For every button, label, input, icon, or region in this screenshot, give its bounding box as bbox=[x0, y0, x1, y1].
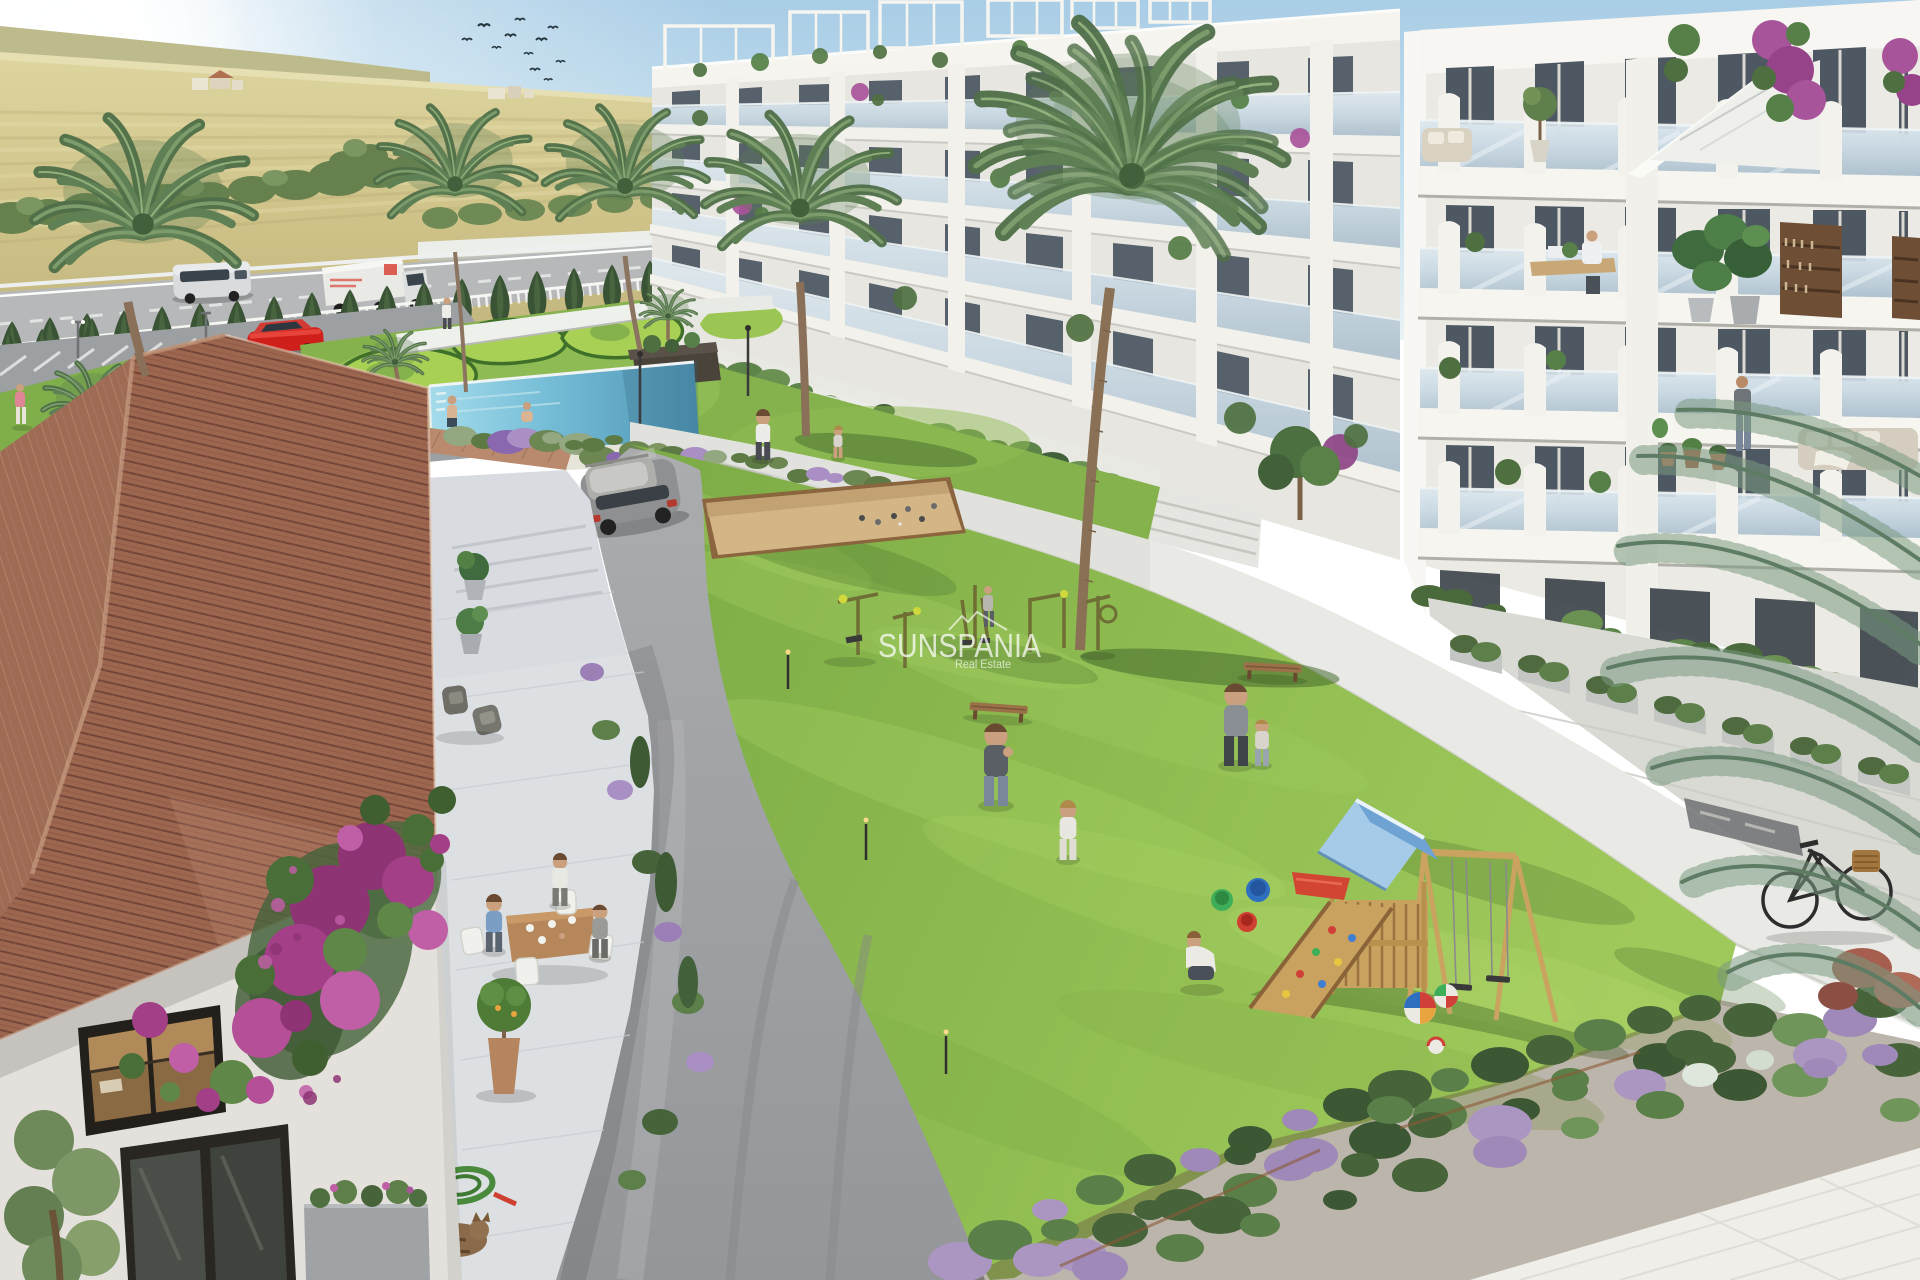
svg-text:Real Estate: Real Estate bbox=[955, 659, 1011, 671]
